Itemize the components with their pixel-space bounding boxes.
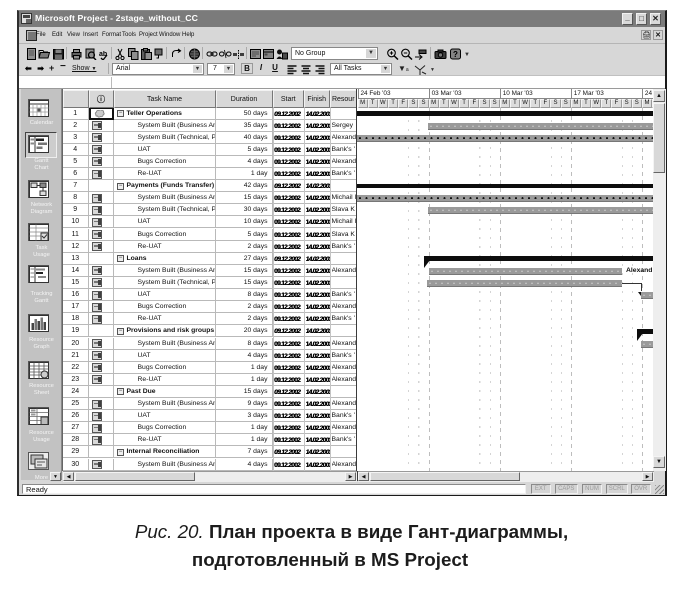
svg-text:?: ? (453, 50, 458, 59)
